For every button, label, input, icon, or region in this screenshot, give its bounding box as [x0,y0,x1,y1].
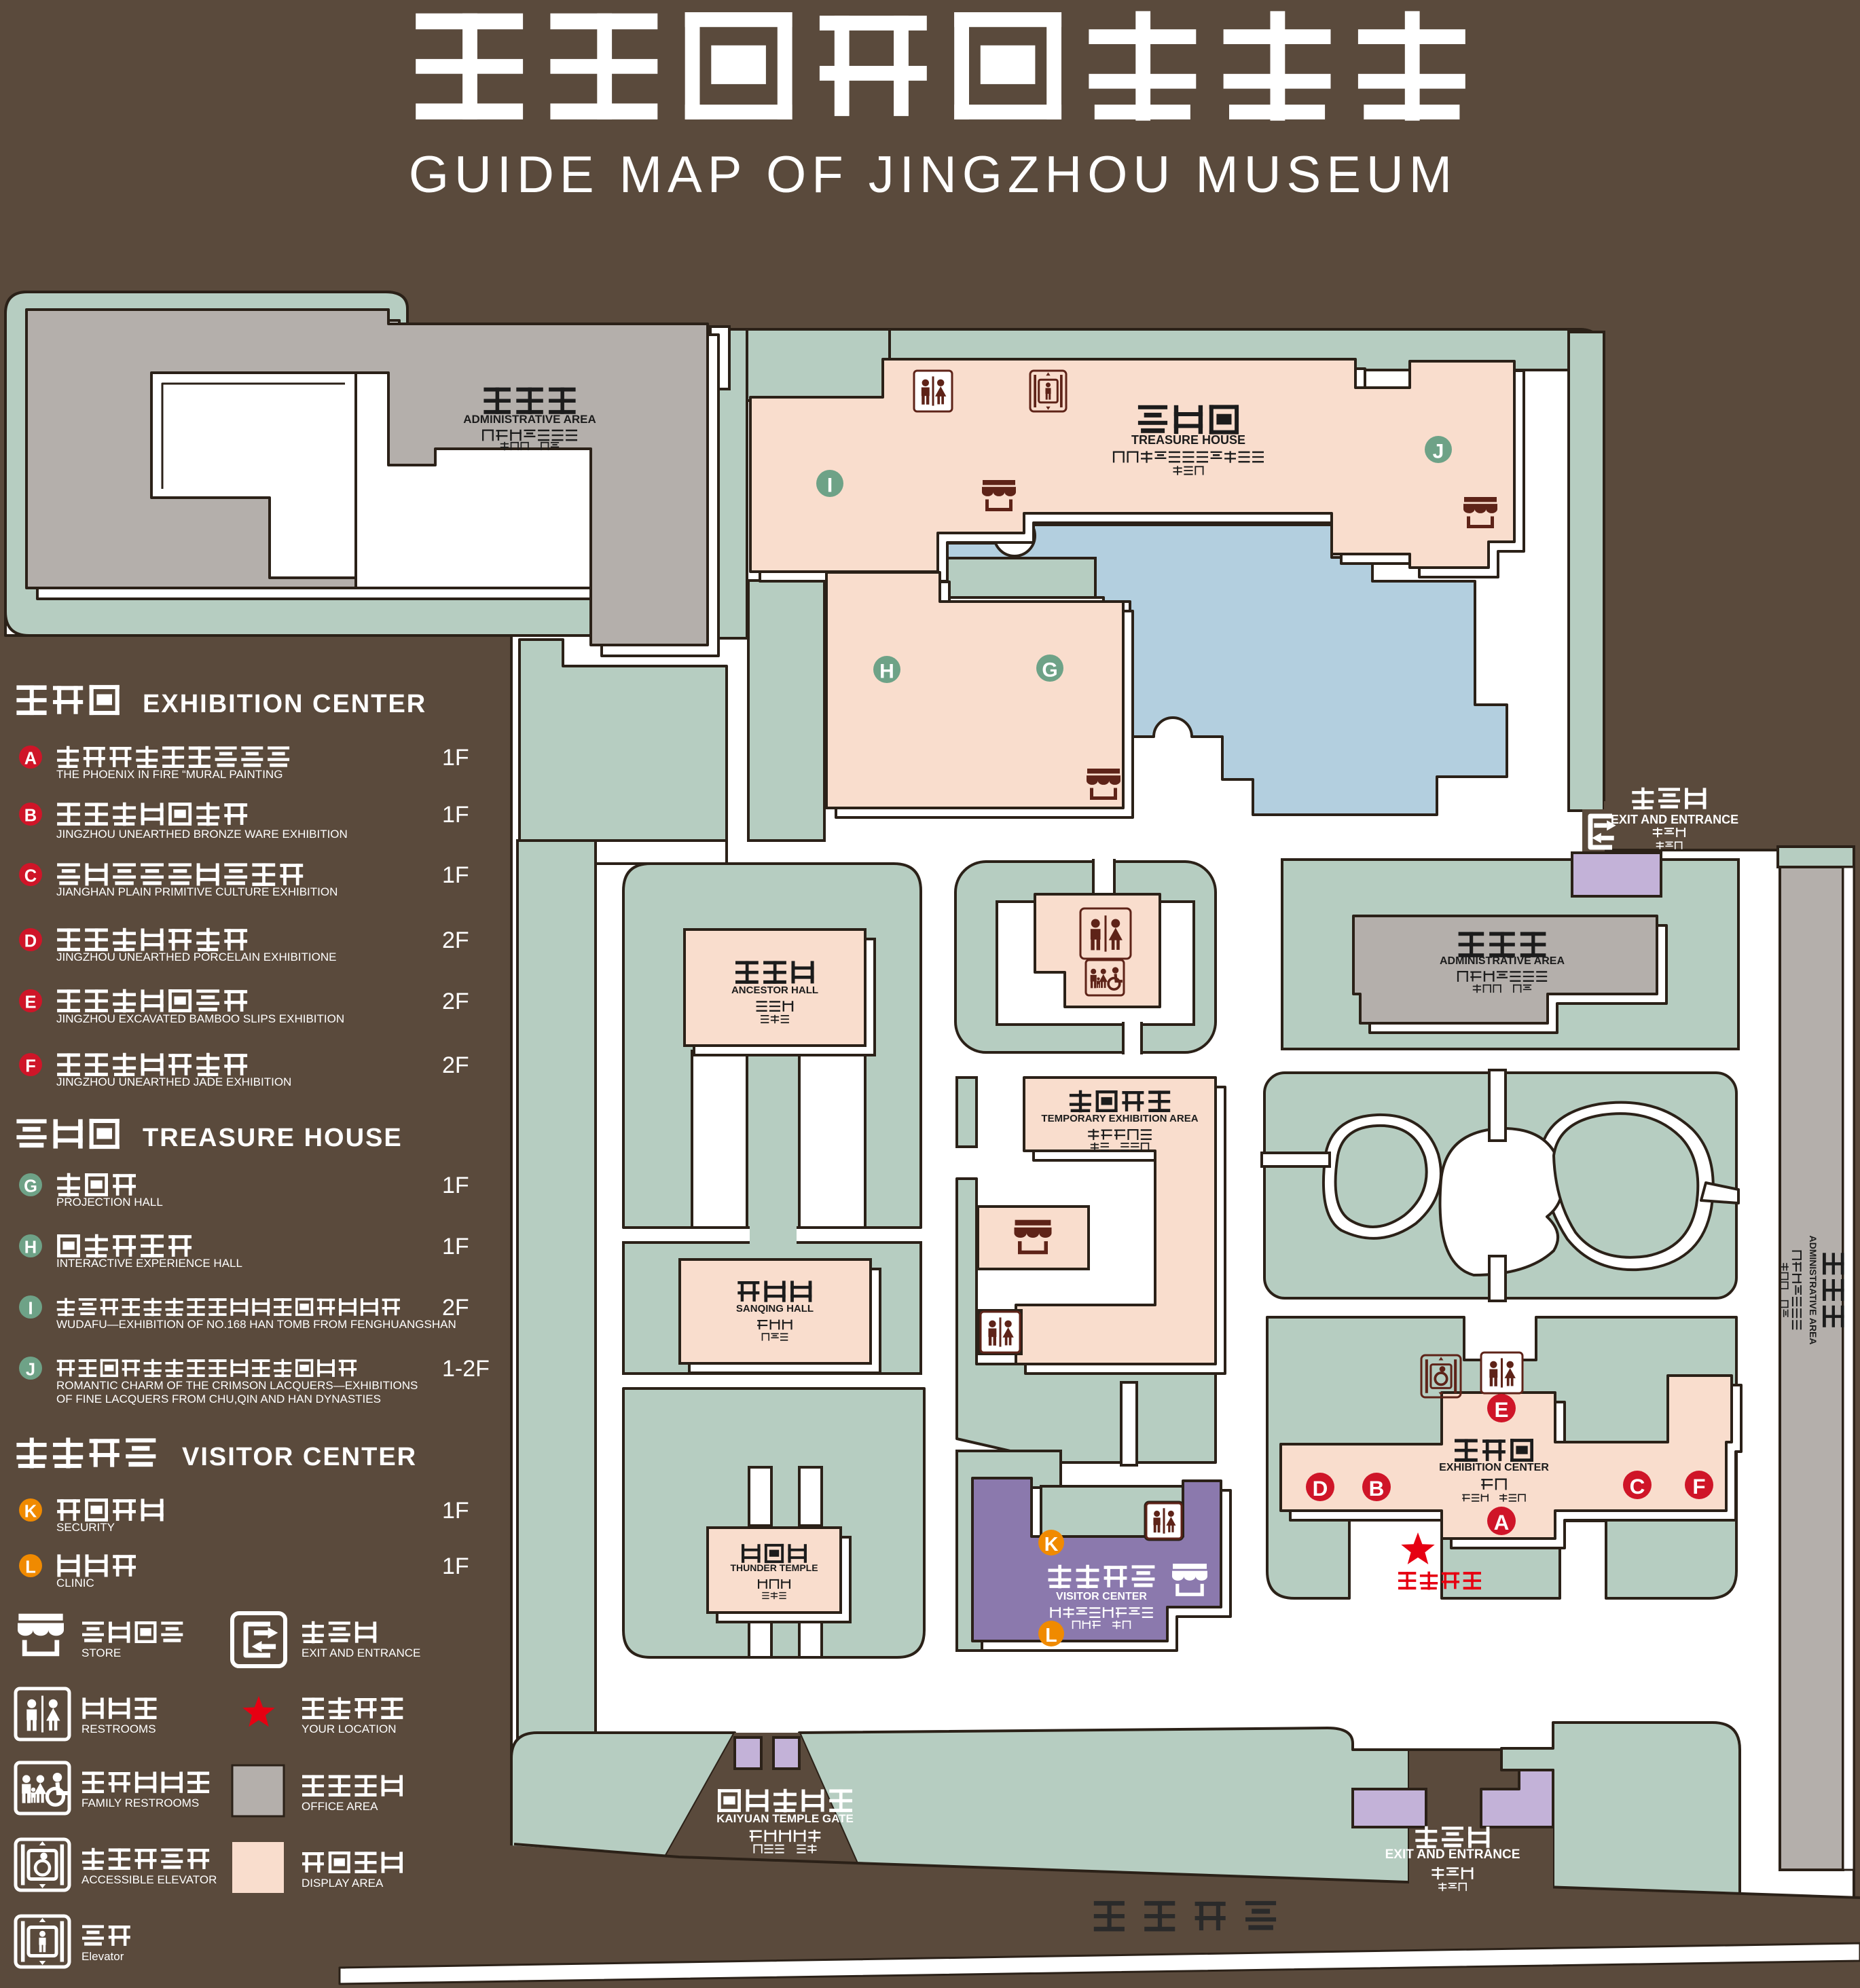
svg-text:F: F [25,1057,36,1076]
svg-text:OFFICE AREA: OFFICE AREA [302,1800,378,1813]
svg-text:EXIT AND ENTRANCE: EXIT AND ENTRANCE [302,1646,420,1659]
svg-text:K: K [1044,1534,1059,1556]
svg-text:D: D [24,932,37,951]
svg-text:B: B [1369,1476,1385,1501]
svg-text:EXIT AND ENTRANCE: EXIT AND ENTRANCE [1385,1847,1520,1862]
svg-text:SANQING HALL: SANQING HALL [736,1303,814,1314]
svg-text:Elevator: Elevator [81,1950,124,1963]
svg-text:D: D [1313,1476,1328,1501]
svg-text:YOUR LOCATION: YOUR LOCATION [302,1723,396,1735]
svg-text:E: E [1494,1397,1508,1422]
svg-text:FAMILY RESTROOMS: FAMILY RESTROOMS [81,1797,199,1809]
svg-text:KAIYUAN TEMPLE GATE: KAIYUAN TEMPLE GATE [716,1812,854,1825]
svg-text:TREASURE HOUSE: TREASURE HOUSE [143,1124,403,1152]
svg-text:DISPLAY AREA: DISPLAY AREA [302,1877,384,1890]
svg-text:VISITOR CENTER: VISITOR CENTER [1056,1591,1147,1602]
svg-text:2F: 2F [442,927,469,953]
svg-text:ROMANTIC CHARM OF THE CRIMSON: ROMANTIC CHARM OF THE CRIMSON LACQUERS—E… [56,1379,418,1392]
svg-text:J: J [1433,440,1444,462]
svg-text:F: F [1692,1474,1705,1498]
svg-text:EXHIBITION CENTER: EXHIBITION CENTER [143,690,426,718]
svg-text:SECURITY: SECURITY [56,1521,115,1534]
svg-text:GUIDE MAP OF JINGZHOU MUSEUM: GUIDE MAP OF JINGZHOU MUSEUM [409,146,1457,204]
svg-text:2F: 2F [442,1295,469,1321]
svg-text:STORE: STORE [81,1646,121,1659]
svg-text:JINGZHOU UNEARTHED PORCELAIN E: JINGZHOU UNEARTHED PORCELAIN EXHIBITIONE [56,951,336,963]
svg-text:A: A [24,750,37,769]
svg-text:2F: 2F [442,989,469,1014]
svg-text:1F: 1F [442,802,469,828]
svg-text:A: A [1494,1510,1510,1534]
svg-text:INTERACTIVE EXPERIENCE HALL: INTERACTIVE EXPERIENCE HALL [56,1257,242,1270]
svg-text:1F: 1F [442,1498,469,1524]
svg-text:H: H [879,660,894,682]
svg-text:1F: 1F [442,745,469,771]
svg-text:ADMINISTRATIVE AREA: ADMINISTRATIVE AREA [1440,955,1565,967]
svg-text:C: C [1630,1474,1645,1498]
svg-text:ACCESSIBLE ELEVATOR: ACCESSIBLE ELEVATOR [81,1873,217,1886]
svg-text:RESTROOMS: RESTROOMS [81,1723,156,1735]
svg-text:1-2F: 1-2F [442,1356,490,1382]
svg-text:J: J [26,1361,35,1380]
svg-text:TEMPORARY EXHIBITION AREA: TEMPORARY EXHIBITION AREA [1041,1113,1198,1124]
svg-text:1F: 1F [442,1234,469,1259]
svg-text:THUNDER TEMPLE: THUNDER TEMPLE [730,1562,818,1573]
svg-text:PROJECTION HALL: PROJECTION HALL [56,1196,163,1209]
svg-text:ADMINISTRATIVE AREA: ADMINISTRATIVE AREA [463,413,596,426]
svg-text:B: B [24,807,37,826]
svg-text:C: C [24,867,37,886]
svg-text:ANCESTOR HALL: ANCESTOR HALL [731,984,818,996]
svg-text:JINGZHOU EXCAVATED BAMBOO SLIP: JINGZHOU EXCAVATED BAMBOO SLIPS EXHIBITI… [56,1012,344,1025]
svg-text:K: K [24,1503,37,1522]
svg-text:OF FINE LACQUERS FROM CHU,QIN: OF FINE LACQUERS FROM CHU,QIN AND HAN DY… [56,1393,381,1405]
svg-text:ADMINISTRATIVE AREA: ADMINISTRATIVE AREA [1808,1236,1819,1345]
svg-text:E: E [24,993,36,1012]
svg-text:EXHIBITION CENTER: EXHIBITION CENTER [1439,1462,1549,1473]
svg-text:G: G [24,1177,37,1196]
svg-text:H: H [24,1238,37,1257]
svg-text:L: L [25,1558,36,1577]
svg-text:1F: 1F [442,862,469,888]
svg-text:L: L [1045,1625,1057,1646]
svg-text:JIANGHAN PLAIN PRIMITIVE CULTU: JIANGHAN PLAIN PRIMITIVE CULTURE EXHIBIT… [56,885,338,898]
svg-text:G: G [1042,659,1057,681]
svg-text:EXIT AND ENTRANCE: EXIT AND ENTRANCE [1611,813,1738,826]
svg-text:THE PHOENIX IN FIRE “MURAL PAI: THE PHOENIX IN FIRE “MURAL PAINTING [56,768,282,781]
svg-text:TREASURE HOUSE: TREASURE HOUSE [1131,433,1245,447]
svg-text:1F: 1F [442,1553,469,1579]
svg-text:I: I [827,474,833,496]
svg-text:JINGZHOU UNEARTHED JADE EXHIBI: JINGZHOU UNEARTHED JADE EXHIBITION [56,1075,291,1088]
svg-text:2F: 2F [442,1052,469,1078]
svg-text:CLINIC: CLINIC [56,1577,94,1589]
svg-text:VISITOR CENTER: VISITOR CENTER [182,1443,417,1471]
svg-text:JINGZHOU UNEARTHED BRONZE WARE: JINGZHOU UNEARTHED BRONZE WARE EXHIBITIO… [56,828,348,841]
svg-text:1F: 1F [442,1173,469,1198]
svg-text:WUDAFU—EXHIBITION OF NO.168 HA: WUDAFU—EXHIBITION OF NO.168 HAN TOMB FRO… [56,1318,456,1331]
svg-text:I: I [28,1300,33,1319]
